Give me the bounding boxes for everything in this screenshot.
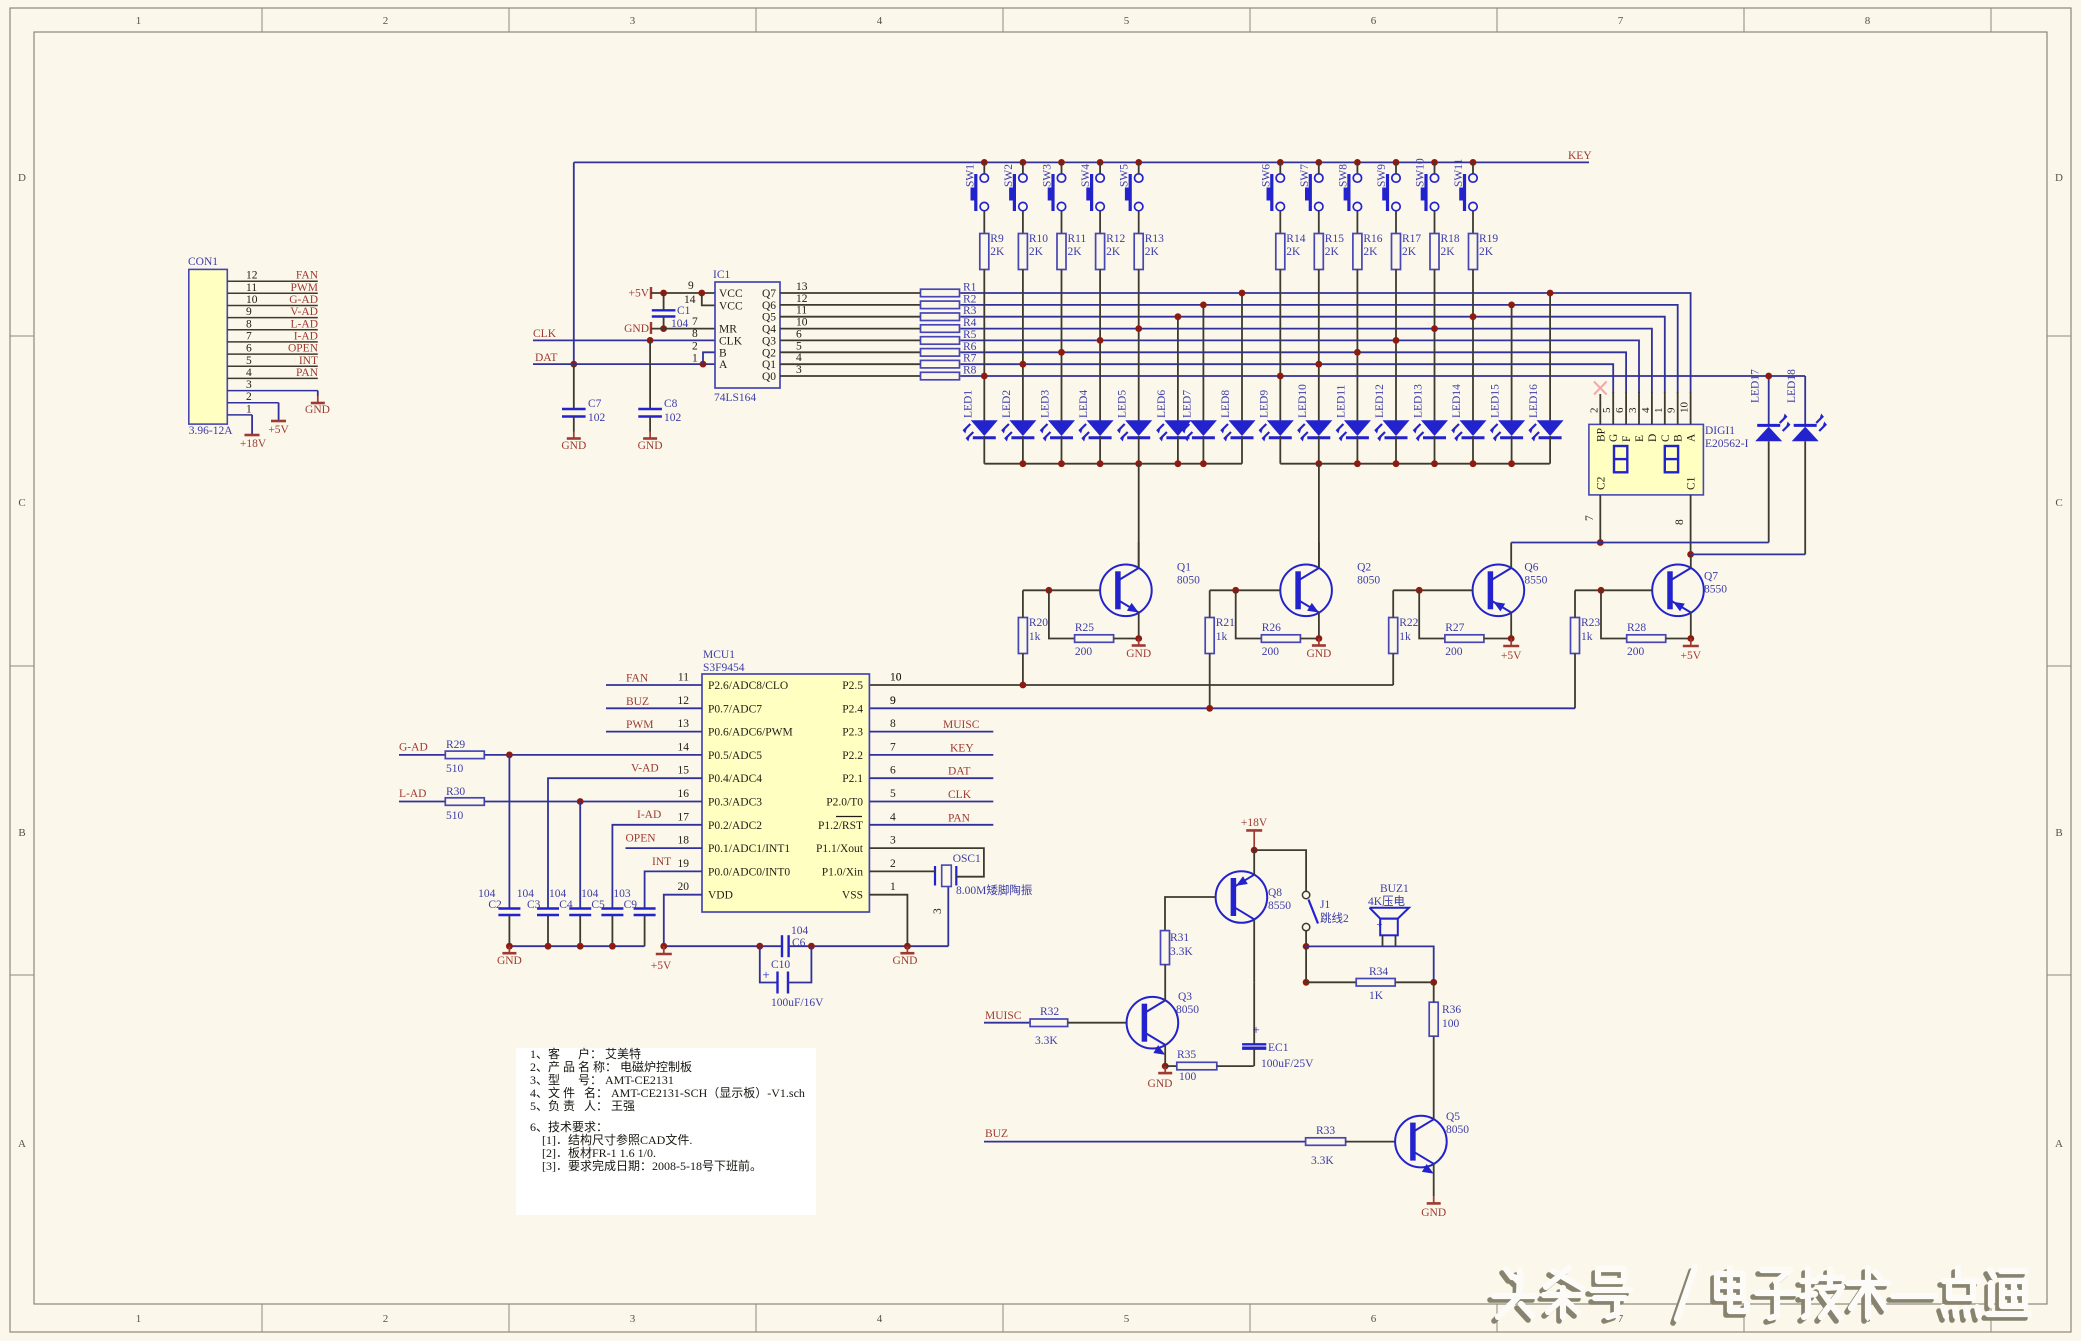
svg-text:6、技术要求：: 6、技术要求： — [530, 1120, 608, 1134]
svg-text:C2: C2 — [1596, 476, 1608, 490]
svg-text:E: E — [1634, 435, 1646, 442]
svg-text:P0.6/ADC6/PWM: P0.6/ADC6/PWM — [708, 727, 793, 739]
svg-text:A: A — [719, 359, 728, 371]
svg-text:C5: C5 — [591, 899, 605, 911]
svg-text:14: 14 — [678, 741, 690, 753]
svg-text:8050: 8050 — [1177, 574, 1200, 586]
svg-text:R27: R27 — [1445, 622, 1464, 634]
svg-text:Q0: Q0 — [762, 371, 776, 383]
svg-text:2K: 2K — [1106, 246, 1121, 258]
svg-text:Q4: Q4 — [762, 324, 776, 336]
svg-text:LED7: LED7 — [1181, 390, 1193, 418]
svg-text:6: 6 — [1614, 407, 1626, 413]
svg-text:P2.3: P2.3 — [842, 727, 863, 739]
svg-text:200: 200 — [1075, 646, 1093, 658]
svg-text:5: 5 — [890, 788, 896, 800]
svg-text:FAN: FAN — [626, 673, 649, 685]
svg-text:3.3K: 3.3K — [1035, 1035, 1058, 1047]
svg-text:INT: INT — [299, 355, 318, 367]
svg-text:LED18: LED18 — [1786, 369, 1798, 403]
svg-text:GND: GND — [893, 955, 918, 967]
svg-text:R1: R1 — [963, 282, 977, 294]
svg-text:R6: R6 — [963, 341, 977, 353]
svg-text:CLK: CLK — [533, 328, 557, 340]
svg-text:EC1: EC1 — [1268, 1042, 1289, 1054]
svg-text:R32: R32 — [1040, 1006, 1059, 1018]
svg-text:P2.5: P2.5 — [842, 680, 863, 692]
svg-text:11: 11 — [246, 282, 257, 294]
svg-text:CLK: CLK — [719, 335, 743, 347]
svg-text:LED3: LED3 — [1040, 390, 1052, 418]
svg-text:R3: R3 — [963, 305, 977, 317]
svg-text:+5V: +5V — [628, 288, 649, 300]
svg-text:6: 6 — [890, 765, 896, 777]
svg-text:1k: 1k — [1029, 631, 1041, 643]
svg-text:LED12: LED12 — [1374, 384, 1386, 418]
svg-text:PWM: PWM — [291, 282, 318, 294]
svg-text:跳线2: 跳线2 — [1320, 911, 1349, 925]
svg-text:B: B — [18, 827, 25, 839]
svg-text:R17: R17 — [1402, 233, 1421, 245]
svg-text:[1]．结构尺寸参照CAD文件.: [1]．结构尺寸参照CAD文件. — [530, 1132, 692, 1147]
svg-text:8050: 8050 — [1357, 574, 1380, 586]
svg-text:MCU1: MCU1 — [703, 649, 735, 661]
svg-text:4、文 件 名： AMT-CE2131-SCH（显示板: 4、文 件 名： AMT-CE2131-SCH（显示板）-V1.sch — [530, 1085, 805, 1100]
svg-text:KEY: KEY — [950, 742, 974, 754]
svg-text:D: D — [2055, 172, 2063, 184]
svg-text:8: 8 — [1674, 519, 1686, 525]
svg-text:510: 510 — [446, 763, 464, 775]
svg-text:A: A — [18, 1138, 26, 1150]
svg-text:INT: INT — [652, 856, 671, 868]
svg-text:7: 7 — [246, 330, 252, 342]
svg-text:I-AD: I-AD — [637, 809, 661, 821]
svg-text:8050: 8050 — [1446, 1124, 1469, 1136]
svg-text:DAT: DAT — [948, 766, 970, 778]
svg-text:9: 9 — [688, 280, 694, 292]
svg-text:1: 1 — [136, 15, 142, 27]
svg-text:CON1: CON1 — [188, 256, 218, 268]
svg-text:9: 9 — [890, 695, 896, 707]
svg-text:L-AD: L-AD — [291, 318, 318, 330]
svg-text:C: C — [1660, 434, 1672, 442]
svg-text:74LS164: 74LS164 — [714, 392, 756, 404]
svg-text:100: 100 — [1442, 1018, 1460, 1030]
svg-text:R12: R12 — [1106, 233, 1125, 245]
svg-text:J1: J1 — [1320, 899, 1330, 911]
svg-text:1: 1 — [890, 881, 896, 893]
svg-text:1: 1 — [246, 403, 252, 415]
svg-text:7: 7 — [1618, 15, 1624, 27]
svg-text:5: 5 — [796, 340, 802, 352]
svg-text:2: 2 — [692, 341, 698, 353]
svg-text:5: 5 — [1124, 15, 1130, 27]
svg-text:8050: 8050 — [1176, 1004, 1199, 1016]
svg-text:P2.2: P2.2 — [842, 750, 863, 762]
svg-text:DIGI1: DIGI1 — [1705, 425, 1735, 437]
svg-text:1: 1 — [692, 353, 698, 365]
svg-text:7: 7 — [1584, 515, 1596, 521]
svg-text:200: 200 — [1445, 646, 1463, 658]
svg-text:[3]．要求完成日期：2008-5-18号下班前。: [3]．要求完成日期：2008-5-18号下班前。 — [530, 1158, 762, 1173]
svg-text:R4: R4 — [963, 317, 977, 329]
svg-text:2、产 品 名 称： 电磁炉控制板: 2、产 品 名 称： 电磁炉控制板 — [530, 1059, 692, 1074]
svg-text:SW8: SW8 — [1337, 164, 1349, 187]
svg-text:4: 4 — [246, 367, 252, 379]
svg-text:2K: 2K — [1145, 246, 1160, 258]
svg-text:Q1: Q1 — [1177, 561, 1191, 573]
svg-text:3: 3 — [246, 379, 252, 391]
svg-text:SW10: SW10 — [1415, 158, 1427, 187]
svg-text:4: 4 — [796, 352, 802, 364]
svg-text:R31: R31 — [1170, 932, 1189, 944]
svg-text:R16: R16 — [1363, 233, 1382, 245]
svg-text:GND: GND — [561, 440, 586, 452]
svg-text:C2: C2 — [488, 899, 502, 911]
svg-text:C4: C4 — [559, 899, 573, 911]
svg-text:Q2: Q2 — [762, 347, 776, 359]
svg-text:P0.2/ADC2: P0.2/ADC2 — [708, 820, 762, 832]
svg-text:R33: R33 — [1316, 1125, 1335, 1137]
svg-text:7: 7 — [692, 316, 698, 328]
svg-text:LED8: LED8 — [1220, 390, 1232, 418]
svg-text:2: 2 — [383, 1313, 389, 1325]
svg-text:LED2: LED2 — [1001, 390, 1013, 418]
svg-text:100uF/25V: 100uF/25V — [1261, 1058, 1314, 1070]
svg-text:OSC1: OSC1 — [953, 853, 981, 865]
svg-text:IC1: IC1 — [713, 269, 731, 281]
svg-text:GND: GND — [497, 955, 522, 967]
svg-text:11: 11 — [796, 305, 807, 317]
svg-text:5: 5 — [246, 355, 252, 367]
svg-text:3.3K: 3.3K — [1170, 946, 1193, 958]
svg-text:GND: GND — [624, 323, 649, 335]
svg-text:8: 8 — [246, 318, 252, 330]
svg-text:LED5: LED5 — [1117, 390, 1129, 418]
svg-text:C8: C8 — [664, 398, 678, 410]
svg-text:MR: MR — [719, 324, 737, 336]
svg-text:9: 9 — [246, 306, 252, 318]
svg-text:5: 5 — [1124, 1313, 1130, 1325]
svg-text:OPEN: OPEN — [288, 343, 319, 355]
svg-text:G: G — [1608, 434, 1620, 442]
svg-text:LED15: LED15 — [1490, 384, 1502, 418]
svg-text:5、负 责 人： 王强: 5、负 责 人： 王强 — [530, 1099, 635, 1113]
svg-text:LED17: LED17 — [1750, 369, 1762, 403]
svg-text:6: 6 — [796, 328, 802, 340]
svg-text:B: B — [719, 347, 727, 359]
svg-text:1k: 1k — [1216, 631, 1228, 643]
svg-text:Q5: Q5 — [1446, 1111, 1460, 1123]
svg-text:P2.4: P2.4 — [842, 703, 863, 715]
svg-text:P0.4/ADC4: P0.4/ADC4 — [708, 773, 762, 785]
svg-text:3: 3 — [932, 908, 944, 914]
svg-text:2: 2 — [890, 858, 896, 870]
svg-text:LED11: LED11 — [1335, 384, 1347, 418]
svg-text:100uF/16V: 100uF/16V — [771, 997, 824, 1009]
svg-text:R28: R28 — [1627, 622, 1646, 634]
svg-text:BUZ: BUZ — [985, 1128, 1008, 1140]
svg-text:R14: R14 — [1286, 233, 1305, 245]
svg-text:17: 17 — [678, 811, 690, 823]
svg-text:[2]．板材FR-1 1.6 1/0.: [2]．板材FR-1 1.6 1/0. — [530, 1146, 656, 1160]
svg-text:R20: R20 — [1029, 617, 1048, 629]
svg-text:C6: C6 — [792, 937, 806, 949]
svg-text:FAN: FAN — [296, 270, 319, 282]
svg-text:3.96-12A: 3.96-12A — [189, 425, 233, 437]
svg-text:4: 4 — [877, 1313, 883, 1325]
svg-text:MUISC: MUISC — [943, 719, 980, 731]
svg-text:DAT: DAT — [535, 352, 557, 364]
svg-text:PAN: PAN — [296, 367, 319, 379]
svg-text:1: 1 — [136, 1313, 142, 1325]
svg-text:R23: R23 — [1581, 617, 1600, 629]
svg-text:+18V: +18V — [240, 438, 267, 450]
svg-text:1k: 1k — [1581, 631, 1593, 643]
svg-text:4: 4 — [1640, 407, 1652, 413]
svg-text:R13: R13 — [1145, 233, 1164, 245]
svg-text:L-AD: L-AD — [399, 788, 426, 800]
svg-text:Q1: Q1 — [762, 359, 776, 371]
svg-text:PWM: PWM — [626, 719, 653, 731]
svg-text:LED10: LED10 — [1297, 384, 1309, 418]
svg-text:2K: 2K — [1479, 246, 1494, 258]
svg-text:GND: GND — [1421, 1207, 1446, 1219]
svg-text:P0.7/ADC7: P0.7/ADC7 — [708, 703, 762, 715]
svg-text:200: 200 — [1262, 646, 1280, 658]
svg-text:R36: R36 — [1442, 1004, 1461, 1016]
svg-text:A: A — [1686, 433, 1698, 442]
svg-text:BUZ: BUZ — [626, 696, 649, 708]
svg-text:C1: C1 — [677, 305, 691, 317]
svg-text:6: 6 — [246, 343, 252, 355]
svg-text:5: 5 — [1601, 407, 1613, 413]
svg-text:2: 2 — [1588, 408, 1600, 414]
svg-text:BP: BP — [1595, 428, 1607, 442]
svg-text:10: 10 — [246, 294, 258, 306]
svg-text:C7: C7 — [588, 398, 602, 410]
svg-text:R15: R15 — [1325, 233, 1344, 245]
svg-text:C: C — [2055, 497, 2062, 509]
svg-text:10: 10 — [796, 317, 808, 329]
svg-text:SW11: SW11 — [1453, 158, 1465, 187]
svg-text:GND: GND — [305, 404, 330, 416]
svg-text:R18: R18 — [1441, 233, 1460, 245]
svg-text:2K: 2K — [1441, 246, 1456, 258]
svg-text:19: 19 — [678, 858, 690, 870]
svg-text:2K: 2K — [1029, 246, 1044, 258]
svg-text:+: + — [762, 967, 769, 982]
svg-text:LED9: LED9 — [1258, 390, 1270, 418]
svg-text:SW6: SW6 — [1260, 164, 1272, 187]
svg-text:R29: R29 — [446, 739, 465, 751]
svg-text:CLK: CLK — [948, 789, 972, 801]
svg-text:B: B — [1673, 434, 1685, 442]
svg-text:2K: 2K — [1402, 246, 1417, 258]
svg-text:+5V: +5V — [268, 424, 289, 436]
svg-text:15: 15 — [678, 765, 690, 777]
svg-text:PAN: PAN — [948, 812, 971, 824]
svg-text:Q6: Q6 — [762, 300, 776, 312]
svg-text:R26: R26 — [1262, 622, 1281, 634]
svg-text:SW7: SW7 — [1299, 164, 1311, 187]
svg-text:12: 12 — [246, 270, 258, 282]
svg-text:OPEN: OPEN — [626, 833, 657, 845]
svg-text:1、客 户： 艾美特: 1、客 户： 艾美特 — [530, 1046, 641, 1061]
svg-text:Q5: Q5 — [762, 312, 776, 324]
svg-text:R2: R2 — [963, 293, 977, 305]
svg-text:10: 10 — [890, 672, 902, 684]
svg-text:Q8: Q8 — [1268, 887, 1282, 899]
svg-text:C3: C3 — [527, 899, 541, 911]
svg-text:S3F9454: S3F9454 — [703, 662, 745, 674]
svg-text:P2.6/ADC8/CLO: P2.6/ADC8/CLO — [708, 680, 788, 692]
svg-text:P1.2/RST: P1.2/RST — [818, 820, 863, 832]
svg-text:P0.3/ADC3: P0.3/ADC3 — [708, 797, 762, 809]
svg-text:SW5: SW5 — [1119, 164, 1131, 187]
svg-text:P1.1/Xout: P1.1/Xout — [816, 843, 864, 855]
svg-text:R34: R34 — [1369, 966, 1388, 978]
svg-text:VSS: VSS — [842, 890, 863, 902]
svg-text:8550: 8550 — [1524, 574, 1547, 586]
svg-text:Q7: Q7 — [1704, 570, 1718, 582]
svg-text:R9: R9 — [990, 233, 1004, 245]
svg-text:SW2: SW2 — [1003, 164, 1015, 187]
svg-text:SW3: SW3 — [1042, 164, 1054, 187]
svg-text:BUZ1: BUZ1 — [1380, 883, 1409, 895]
svg-text:R35: R35 — [1177, 1049, 1196, 1061]
svg-text:13: 13 — [796, 281, 808, 293]
svg-text:VCC: VCC — [719, 300, 743, 312]
svg-text:2: 2 — [246, 391, 252, 403]
svg-text:R11: R11 — [1068, 233, 1087, 245]
svg-text:GND: GND — [638, 440, 663, 452]
svg-text:Q2: Q2 — [1357, 561, 1371, 573]
svg-text:V-AD: V-AD — [290, 306, 318, 318]
svg-text:V-AD: V-AD — [631, 763, 659, 775]
svg-text:6: 6 — [1371, 15, 1377, 27]
svg-text:LED6: LED6 — [1156, 390, 1168, 418]
svg-text:KEY: KEY — [1568, 150, 1592, 162]
svg-text:D: D — [18, 172, 26, 184]
svg-text:LED14: LED14 — [1451, 384, 1463, 418]
svg-text:+18V: +18V — [1241, 817, 1268, 829]
svg-text:102: 102 — [664, 412, 682, 424]
svg-text:C: C — [18, 497, 25, 509]
svg-text:2K: 2K — [1068, 246, 1083, 258]
svg-text:3: 3 — [630, 15, 636, 27]
svg-text:R30: R30 — [446, 786, 465, 798]
svg-text:1k: 1k — [1399, 631, 1411, 643]
svg-text:200: 200 — [1627, 646, 1645, 658]
svg-text:4K压电: 4K压电 — [1368, 895, 1406, 908]
svg-text:MUISC: MUISC — [985, 1010, 1022, 1022]
svg-text:E20562-I: E20562-I — [1705, 438, 1749, 450]
svg-text:SW1: SW1 — [964, 164, 976, 187]
svg-text:2K: 2K — [1286, 246, 1301, 258]
svg-text:F: F — [1621, 436, 1633, 442]
svg-text:4: 4 — [890, 811, 896, 823]
svg-text:8: 8 — [1865, 15, 1871, 27]
svg-text:11: 11 — [678, 672, 689, 684]
svg-text:1: 1 — [1653, 408, 1665, 414]
svg-text:18: 18 — [678, 835, 690, 847]
svg-text:VDD: VDD — [708, 890, 733, 902]
svg-text:13: 13 — [678, 718, 690, 730]
svg-text:Q3: Q3 — [762, 335, 776, 347]
svg-text:P0.0/ADC0/INT0: P0.0/ADC0/INT0 — [708, 866, 790, 878]
svg-text:Q3: Q3 — [1178, 991, 1192, 1003]
svg-text:SW9: SW9 — [1376, 164, 1388, 187]
svg-text:R8: R8 — [963, 365, 977, 377]
svg-text:2: 2 — [383, 15, 389, 27]
svg-text:20: 20 — [678, 881, 690, 893]
svg-text:SW4: SW4 — [1080, 164, 1092, 187]
svg-text:LED13: LED13 — [1413, 384, 1425, 418]
svg-text:VCC: VCC — [719, 288, 743, 300]
svg-text:100: 100 — [1179, 1071, 1197, 1083]
svg-text:P1.0/Xin: P1.0/Xin — [822, 866, 863, 878]
svg-text:R19: R19 — [1479, 233, 1498, 245]
svg-text:R22: R22 — [1399, 617, 1418, 629]
svg-text:8550: 8550 — [1704, 583, 1727, 595]
svg-text:G-AD: G-AD — [399, 742, 428, 754]
svg-text:R25: R25 — [1075, 622, 1094, 634]
svg-text:102: 102 — [588, 412, 606, 424]
svg-text:C1: C1 — [1686, 476, 1698, 490]
svg-text:D: D — [1647, 434, 1659, 442]
svg-text:LED16: LED16 — [1528, 384, 1540, 418]
svg-text:C9: C9 — [624, 899, 638, 911]
svg-text:Q6: Q6 — [1524, 561, 1538, 573]
svg-text:6: 6 — [1371, 1313, 1377, 1325]
svg-text:+: + — [1252, 1022, 1259, 1037]
svg-text:12: 12 — [678, 695, 690, 707]
svg-text:1K: 1K — [1369, 990, 1384, 1002]
svg-text:C10: C10 — [771, 959, 790, 971]
svg-text:8550: 8550 — [1268, 900, 1291, 912]
svg-text:4: 4 — [877, 15, 883, 27]
svg-text:3、型 号： AMT-CE2131: 3、型 号： AMT-CE2131 — [530, 1073, 674, 1087]
svg-text:LED1: LED1 — [962, 390, 974, 418]
svg-text:GND: GND — [1148, 1078, 1173, 1090]
svg-text:12: 12 — [796, 293, 808, 305]
svg-text:I-AD: I-AD — [294, 330, 318, 342]
svg-text:2K: 2K — [1325, 246, 1340, 258]
svg-text:A: A — [2055, 1138, 2063, 1150]
svg-text:Q7: Q7 — [762, 288, 776, 300]
svg-text:+5V: +5V — [651, 960, 672, 972]
svg-text:2K: 2K — [1363, 246, 1378, 258]
svg-text:P2.1: P2.1 — [842, 773, 863, 785]
svg-text:3: 3 — [796, 364, 802, 376]
svg-text:B: B — [2055, 827, 2062, 839]
svg-text:+5V: +5V — [1681, 650, 1702, 662]
svg-text:P2.0/T0: P2.0/T0 — [826, 797, 863, 809]
svg-text:R5: R5 — [963, 329, 977, 341]
svg-text:8: 8 — [692, 328, 698, 340]
svg-text:R7: R7 — [963, 353, 977, 365]
svg-text:16: 16 — [678, 788, 690, 800]
svg-text:GND: GND — [1126, 648, 1151, 660]
svg-text:3: 3 — [1627, 407, 1639, 413]
svg-text:3: 3 — [630, 1313, 636, 1325]
svg-text:LED4: LED4 — [1078, 390, 1090, 418]
svg-text:GND: GND — [1306, 648, 1331, 660]
svg-text:3.3K: 3.3K — [1311, 1155, 1334, 1167]
svg-text:R10: R10 — [1029, 233, 1048, 245]
svg-text:G-AD: G-AD — [289, 294, 318, 306]
